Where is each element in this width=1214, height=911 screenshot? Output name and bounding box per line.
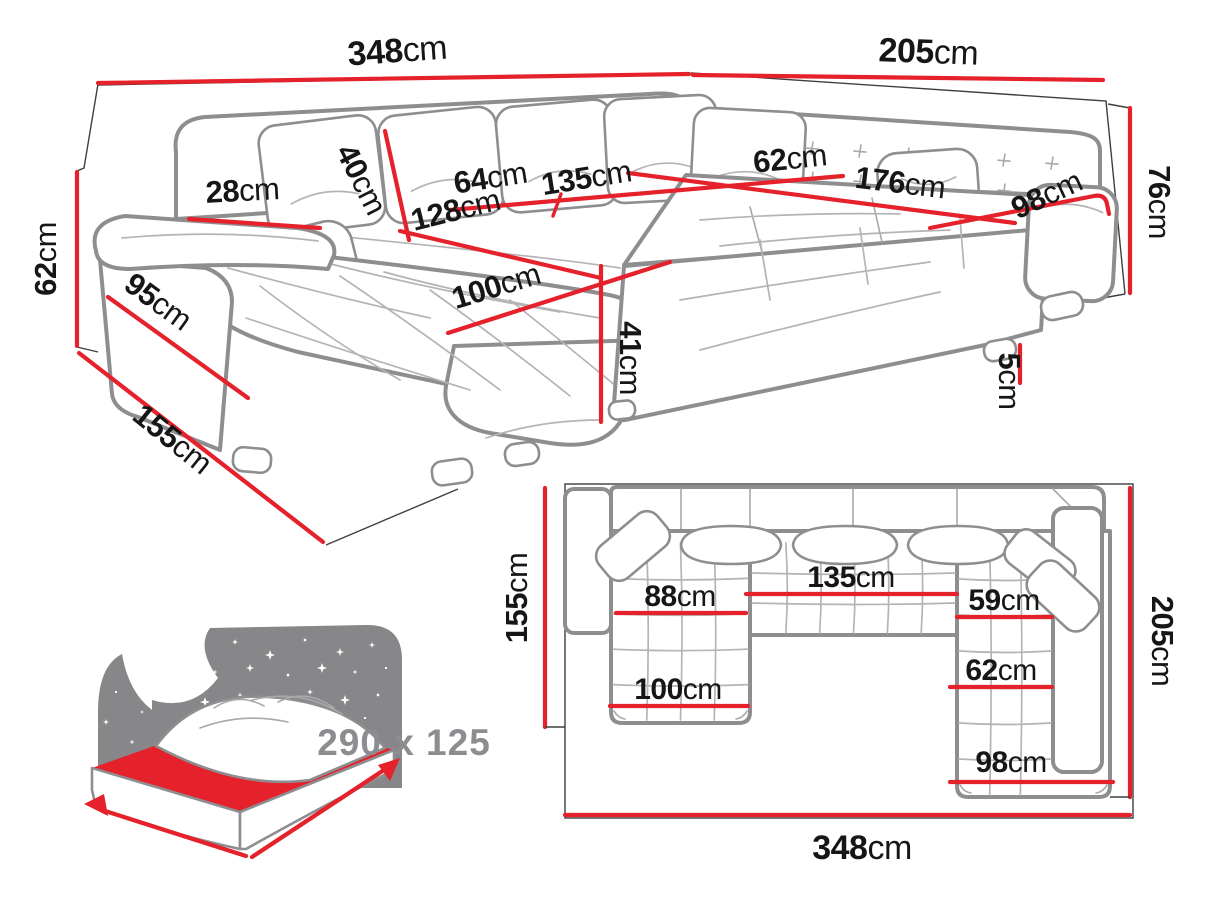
star-icon: [158, 638, 163, 643]
plan-view: 155cm 205cm 348cm 88cm 135cm 59cm 100cm …: [499, 484, 1180, 867]
wall-right-top-tick: [1108, 104, 1130, 108]
wall-left-edge-line: [77, 84, 98, 171]
perspective-view: 348cm 205cm 76cm 62cm 155cm 95cm 28cm 40…: [28, 29, 1177, 545]
sleeping-area-label: 290 x 125: [317, 722, 491, 763]
dim-line-348: [98, 74, 689, 83]
sofa-foot: [232, 446, 272, 473]
sofa-foot: [431, 457, 474, 486]
dim-label-348: 348cm: [346, 29, 448, 74]
plan-armrest-right: [1053, 508, 1102, 772]
plan-pillow-3: [908, 526, 1008, 564]
star-dot: [377, 694, 380, 697]
star-dot: [181, 691, 184, 694]
dim-line-205: [693, 75, 1103, 80]
plan-label-348: 348cm: [812, 829, 912, 867]
plan-pillow-2: [793, 526, 897, 564]
plan-label-98: 98cm: [975, 746, 1046, 779]
dim-label-62-left: 62cm: [28, 222, 63, 296]
plan-label-59: 59cm: [968, 584, 1039, 617]
plan-label-135: 135cm: [807, 561, 895, 594]
floor-front-line: [326, 489, 458, 545]
diagram-page: 348cm 205cm 76cm 62cm 155cm 95cm 28cm 40…: [0, 0, 1214, 911]
plan-label-88: 88cm: [644, 580, 715, 613]
plan-label-62: 62cm: [965, 654, 1036, 687]
star-dot: [287, 674, 290, 677]
dim-label-28: 28cm: [205, 171, 281, 210]
sofa-perspective: [95, 94, 1118, 487]
star-dot: [169, 667, 172, 670]
star-dot: [385, 667, 387, 669]
plan-label-205: 205cm: [1145, 596, 1180, 687]
plan-label-100: 100cm: [634, 673, 722, 706]
sofa-dimension-diagram: 348cm 205cm 76cm 62cm 155cm 95cm 28cm 40…: [0, 0, 1214, 911]
sleeping-function-icon: 290 x 125: [84, 625, 491, 857]
sofa-foot: [608, 400, 636, 421]
star-dot: [304, 639, 307, 642]
dim-label-205: 205cm: [878, 31, 979, 72]
plan-pillow-1: [681, 526, 781, 564]
star-dot: [364, 717, 366, 719]
dim-label-76: 76cm: [1142, 165, 1177, 239]
star-dot: [115, 691, 117, 693]
dim-label-41: 41cm: [613, 321, 648, 395]
chaise-front-face: [445, 340, 642, 445]
dim-label-5: 5cm: [992, 352, 1027, 409]
plan-label-155: 155cm: [499, 553, 534, 644]
sofa-foot: [504, 441, 541, 468]
star-dot: [198, 648, 202, 652]
